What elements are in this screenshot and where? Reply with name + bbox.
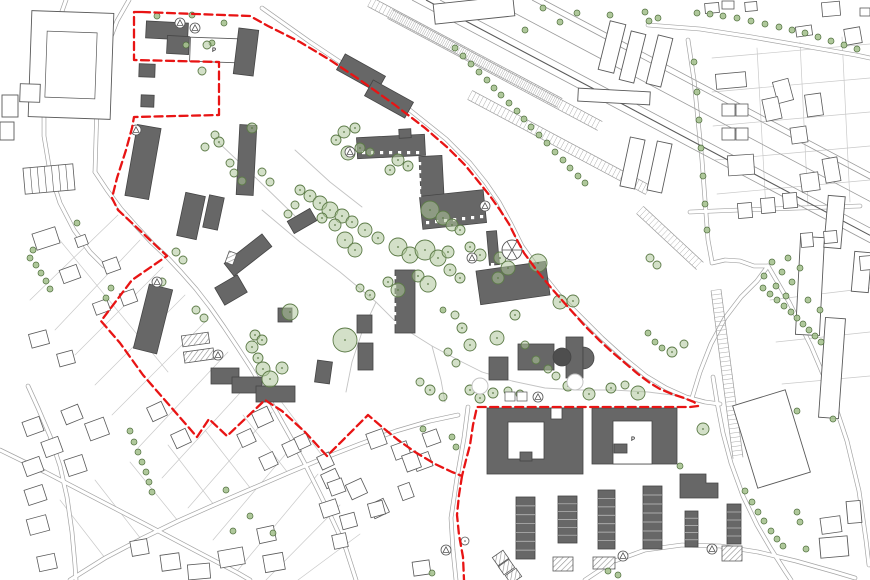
tree-crown <box>460 53 466 59</box>
parking-stall-tick <box>525 83 530 92</box>
tree <box>567 165 573 171</box>
tree-crown <box>781 303 787 309</box>
tree-trunk <box>364 229 366 231</box>
tree-crown <box>761 518 767 524</box>
tree-trunk <box>461 327 463 329</box>
parking-stall-tick <box>402 17 407 26</box>
tree <box>223 487 229 493</box>
tree-crown <box>532 356 540 364</box>
tree-trunk <box>397 246 399 248</box>
tree <box>356 284 364 292</box>
tree <box>211 131 219 139</box>
tree-trunk <box>610 387 612 389</box>
tree-crown <box>221 20 227 26</box>
tree-crown <box>817 307 823 313</box>
tree-crown <box>366 148 374 156</box>
tree <box>605 568 611 574</box>
play-equipment-box <box>505 392 515 401</box>
garage-row <box>516 497 535 559</box>
road-casing <box>692 266 768 398</box>
tree-trunk <box>377 237 379 239</box>
context-building <box>598 21 626 73</box>
tree-crown <box>694 10 700 16</box>
tree-crown <box>774 536 780 542</box>
tree <box>135 449 141 455</box>
tree-crown <box>38 270 44 276</box>
tree-trunk <box>407 165 409 167</box>
playground-marker <box>480 201 490 211</box>
tree <box>331 135 341 145</box>
tree <box>439 393 447 401</box>
tree-crown <box>108 285 114 291</box>
tree <box>677 463 683 469</box>
tree <box>226 159 234 167</box>
tree <box>276 362 288 374</box>
tree <box>645 330 651 336</box>
parking-stall-tick <box>388 10 393 19</box>
tree-trunk <box>469 246 471 248</box>
balcony-notch <box>518 260 521 263</box>
parking-stall-tick <box>551 97 556 106</box>
tree-crown <box>760 285 766 291</box>
tree-crown <box>607 12 613 18</box>
tree <box>221 20 227 26</box>
playground-marker <box>618 551 628 561</box>
tree <box>748 18 754 24</box>
parking-stall-tick <box>719 347 729 348</box>
tree-crown <box>27 255 33 261</box>
tree <box>444 348 452 356</box>
balcony-notch <box>393 312 396 315</box>
tree <box>172 248 180 256</box>
parking-stall-tick <box>731 441 741 442</box>
building-footprint <box>236 125 257 196</box>
tree-crown <box>767 291 773 297</box>
tree <box>700 173 706 179</box>
tree <box>425 385 435 395</box>
tree-trunk <box>334 224 336 226</box>
tree-trunk <box>254 334 256 336</box>
tree <box>420 426 426 432</box>
tree-crown <box>748 18 754 24</box>
tree-trunk <box>417 275 419 277</box>
house <box>820 516 842 535</box>
tree <box>350 123 360 133</box>
parking-stall-tick <box>680 246 687 253</box>
tree <box>659 345 665 351</box>
parking-stall-tick <box>732 450 742 451</box>
tree-crown <box>484 77 490 83</box>
plaza-circle <box>472 378 488 394</box>
parking-stall-tick <box>432 33 437 42</box>
tree-trunk <box>469 344 471 346</box>
parking-stall-tick <box>410 21 415 30</box>
tree <box>465 242 475 252</box>
house <box>822 157 841 183</box>
tree-crown <box>704 227 710 233</box>
rail-line <box>544 0 870 173</box>
tree-crown <box>815 34 821 40</box>
parking-stall-tick <box>713 307 723 308</box>
parking-letter: P <box>631 437 635 443</box>
house <box>821 1 840 17</box>
tree-crown <box>749 499 755 505</box>
tree-crown <box>143 469 149 475</box>
context-building <box>20 84 41 103</box>
stall-row-outline <box>23 164 75 194</box>
parking-stall-tick <box>661 229 668 236</box>
tree <box>646 254 654 262</box>
parking-stall-tick <box>722 370 732 371</box>
building-courtyard <box>551 408 562 419</box>
tree-trunk <box>354 127 356 129</box>
road <box>585 545 855 580</box>
tree <box>828 38 834 44</box>
parking-stall-tick <box>670 238 677 245</box>
house <box>790 126 808 144</box>
house <box>24 484 47 505</box>
tree-crown <box>247 513 253 519</box>
hatched-garage <box>722 546 742 561</box>
tree <box>464 339 476 351</box>
building-footprint <box>395 270 415 333</box>
tree <box>455 225 465 235</box>
plaza-circle <box>567 374 583 390</box>
tree <box>179 256 187 264</box>
parking-stall-tick <box>484 61 489 70</box>
tree-crown <box>560 157 566 163</box>
tree-crown <box>794 315 800 321</box>
tree-crown <box>677 463 683 469</box>
tree <box>789 279 795 285</box>
tree-trunk <box>262 368 264 370</box>
tree <box>734 15 740 21</box>
tree <box>696 117 702 123</box>
house <box>147 401 168 421</box>
tree <box>201 143 209 151</box>
ladder-rail <box>392 10 602 122</box>
tree <box>521 341 529 349</box>
tree <box>767 291 773 297</box>
tree-crown <box>691 59 697 65</box>
tree <box>567 295 579 307</box>
tree <box>510 310 520 320</box>
tree-crown <box>785 255 791 261</box>
building-footprint <box>399 129 411 139</box>
balcony-notch <box>418 162 421 165</box>
tree-crown <box>179 256 187 264</box>
tree <box>490 331 504 345</box>
building-footprint <box>614 444 627 453</box>
tree-crown <box>806 327 812 333</box>
hatched-garage <box>593 557 615 569</box>
tree-trunk <box>359 147 361 149</box>
parking-stall-tick <box>542 130 547 139</box>
tree-crown <box>284 210 292 218</box>
survey-point <box>461 537 469 545</box>
house <box>722 104 735 116</box>
tree-crown <box>201 143 209 151</box>
parking-stall-tick <box>386 7 391 16</box>
house <box>805 93 824 117</box>
tree <box>755 509 761 515</box>
tree <box>358 223 372 237</box>
tree <box>794 509 800 515</box>
tree <box>653 261 661 269</box>
parking-stall-tick <box>477 57 482 66</box>
road-casing <box>585 545 855 580</box>
parking-stall-tick <box>713 303 723 304</box>
parking-stall-tick <box>583 152 588 161</box>
building-footprint <box>133 284 172 354</box>
tree <box>642 9 648 15</box>
parking-stall-tick <box>731 446 741 447</box>
tree-crown <box>238 177 246 185</box>
tree-crown <box>812 333 818 339</box>
tree-crown <box>780 543 786 549</box>
parking-stall-tick <box>471 93 476 102</box>
parking-stall-tick <box>503 71 508 80</box>
building-footprint <box>357 315 372 333</box>
building-footprint <box>177 192 206 239</box>
garage-row-body <box>643 486 662 549</box>
parking-stall-tick <box>686 252 693 259</box>
parking-stall-tick <box>712 294 722 295</box>
tree <box>698 145 704 151</box>
house <box>259 451 279 470</box>
tree <box>246 341 258 353</box>
parking-stall-tick <box>655 224 662 231</box>
tree-crown <box>416 378 424 386</box>
tree-crown <box>127 428 133 434</box>
tree-trunk <box>507 267 509 269</box>
parking-stall-tick <box>512 114 517 123</box>
tree-crown <box>468 61 474 67</box>
tree <box>139 459 145 465</box>
tree <box>776 24 782 30</box>
tree <box>444 264 456 276</box>
context-building <box>620 137 645 189</box>
ladder-rail <box>468 99 646 194</box>
tree-crown <box>223 487 229 493</box>
tree-crown <box>451 311 459 319</box>
context-building <box>646 35 673 87</box>
tree <box>333 328 357 352</box>
house <box>332 533 349 550</box>
garage-row-body <box>685 511 698 547</box>
tree <box>149 489 155 495</box>
tree <box>284 210 292 218</box>
tree-crown <box>230 528 236 534</box>
parking-stall-tick <box>514 77 519 86</box>
tree-crown <box>802 30 808 36</box>
house <box>171 428 192 448</box>
tree <box>27 255 33 261</box>
parking-stall-tick <box>564 142 569 151</box>
tree <box>33 262 39 268</box>
garage-row-body <box>727 504 741 544</box>
house <box>824 230 838 243</box>
tree <box>238 177 246 185</box>
tree-trunk <box>499 257 501 259</box>
tree-crown <box>226 159 234 167</box>
context-building <box>819 536 849 558</box>
tree-trunk <box>588 393 590 395</box>
tree-trunk <box>289 311 291 313</box>
tree-crown <box>146 479 152 485</box>
house <box>102 257 121 274</box>
tree-crown <box>452 359 460 367</box>
parking-stall-tick <box>579 150 584 159</box>
tree-crown <box>439 393 447 401</box>
tree-crown <box>514 108 520 114</box>
tree-crown <box>230 169 238 177</box>
house <box>37 553 58 571</box>
parking-stall-tick <box>501 108 506 117</box>
tree <box>329 219 341 231</box>
house <box>59 264 81 283</box>
parking-stall-tick <box>733 454 743 455</box>
tree-trunk <box>397 159 399 161</box>
tree-trunk <box>257 357 259 359</box>
balcony-notch <box>418 194 421 197</box>
tree-trunk <box>344 339 346 341</box>
tree-trunk <box>351 221 353 223</box>
tree <box>270 530 276 536</box>
tree <box>779 269 785 275</box>
tree-crown <box>522 27 528 33</box>
tree <box>451 311 459 319</box>
play-equipment-box <box>517 392 527 401</box>
tree-crown <box>797 519 803 525</box>
building-footprint <box>141 95 154 107</box>
tree-crown <box>680 340 688 348</box>
tree-crown <box>552 149 558 155</box>
church-apse <box>583 347 594 369</box>
tree <box>391 283 405 297</box>
house <box>85 417 110 441</box>
parking-stall-tick <box>591 118 596 127</box>
house <box>251 406 273 428</box>
garage-row <box>598 490 615 549</box>
road <box>692 266 768 398</box>
tree-crown <box>762 21 768 27</box>
parking-stall-tick <box>382 5 387 14</box>
tree-crown <box>698 145 704 151</box>
tree <box>385 165 395 175</box>
parking-stall-tick <box>692 258 699 265</box>
tree-crown <box>696 117 702 123</box>
tree <box>781 303 787 309</box>
parking-stall-tick <box>667 235 674 242</box>
tree-crown <box>768 528 774 534</box>
tree <box>192 306 200 314</box>
parking-stall-tick <box>414 23 419 32</box>
tree-crown <box>103 295 109 301</box>
tree <box>794 408 800 414</box>
tree <box>704 227 710 233</box>
tree <box>762 21 768 27</box>
garage-row <box>558 496 577 543</box>
parcel-line <box>757 48 766 210</box>
tree-crown <box>266 178 274 186</box>
parking-stall-tick <box>528 85 533 94</box>
parking-stall-tick <box>722 374 732 375</box>
parking-stall-tick <box>725 396 735 397</box>
playground-marker <box>345 147 355 157</box>
tree <box>768 528 774 534</box>
house <box>760 197 775 213</box>
house <box>160 553 181 571</box>
tree-trunk <box>427 283 429 285</box>
tree-crown <box>444 348 452 356</box>
tree <box>383 277 393 287</box>
tree-crown <box>805 297 811 303</box>
house <box>57 350 76 367</box>
tree <box>501 261 515 275</box>
tree-crown <box>642 9 648 15</box>
tree-trunk <box>637 392 639 394</box>
parking-stall-tick <box>469 53 474 62</box>
parking-stall-tick <box>486 100 491 109</box>
tree <box>583 388 595 400</box>
tree-trunk <box>344 239 346 241</box>
tree <box>815 34 821 40</box>
tree-trunk <box>451 224 453 226</box>
house <box>64 454 87 476</box>
building-footprint <box>419 155 444 198</box>
tree-crown <box>453 444 459 450</box>
balcony-notch <box>462 217 465 220</box>
tree <box>694 89 700 95</box>
building-footprint <box>215 275 248 305</box>
tree-crown <box>694 89 700 95</box>
garage-row <box>685 511 698 547</box>
building-footprint <box>139 64 155 78</box>
tree <box>532 356 540 364</box>
tree-crown <box>211 131 219 139</box>
tree-trunk <box>397 289 399 291</box>
tree <box>460 53 466 59</box>
tree-crown <box>789 279 795 285</box>
garage-row-body <box>516 497 535 559</box>
tree <box>131 439 137 445</box>
tree <box>127 428 133 434</box>
tree <box>789 27 795 33</box>
map-canvas: PP <box>0 0 870 580</box>
tree-crown <box>506 100 512 106</box>
tree <box>680 340 688 348</box>
tree <box>702 201 708 207</box>
parking-stall-tick <box>558 101 563 110</box>
tree <box>761 273 767 279</box>
tree <box>372 232 384 244</box>
parking-stall-tick <box>590 156 595 165</box>
house <box>737 202 752 218</box>
tree-crown <box>800 321 806 327</box>
parking-stall-tick <box>580 112 585 121</box>
tree-trunk <box>251 346 253 348</box>
parking-letter: P <box>212 48 216 54</box>
tree <box>317 213 327 223</box>
parking-stall-tick <box>673 241 680 248</box>
balcony-notch <box>418 178 421 181</box>
house <box>398 482 414 500</box>
tree-crown <box>544 365 552 373</box>
ladder-rail <box>637 214 697 270</box>
tree-crown <box>33 262 39 268</box>
road <box>648 25 870 58</box>
